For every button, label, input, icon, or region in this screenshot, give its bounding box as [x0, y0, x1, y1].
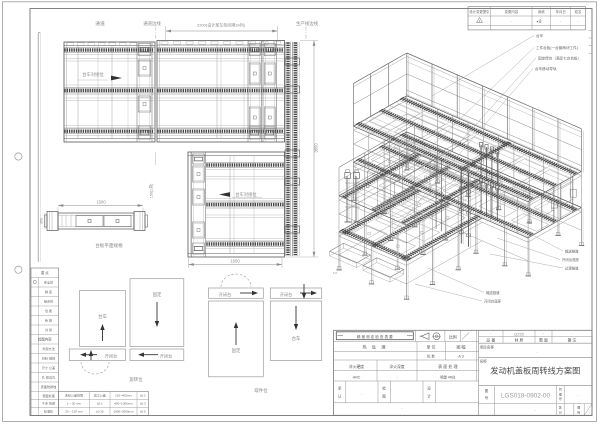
svg-text:淬火深度: 淬火深度: [389, 364, 404, 369]
svg-text:·: ·: [470, 337, 471, 341]
svg-text:台车移动导轨: 台车移动导轨: [535, 66, 557, 71]
svg-text:固定焊台（满足七台台板）: 固定焊台（满足七台台板）: [538, 56, 581, 61]
svg-text:材 质: 材 质: [515, 338, 524, 343]
svg-text:重 点: 重 点: [41, 270, 49, 275]
svg-text:号: 号: [485, 395, 489, 400]
svg-text:开闭台底座: 开闭台底座: [484, 299, 502, 304]
svg-text:表面处理: 表面处理: [42, 393, 54, 398]
svg-text:批 数: 批 数: [427, 354, 435, 359]
svg-text:过渡链道: 过渡链道: [565, 266, 579, 271]
svg-text:孔·锪窝孔: 孔·锪窝孔: [42, 375, 55, 380]
svg-text:备 注: 备 注: [568, 338, 577, 343]
svg-text:固定: 固定: [153, 291, 162, 298]
svg-text:精 度 测 定 检 查 表 要: 精 度 测 定 检 查 表 要: [357, 334, 393, 339]
svg-text:A 3: A 3: [458, 355, 464, 359]
svg-text:品 番: 品 番: [486, 338, 495, 343]
svg-text:干涉·拆卸: 干涉·拆卸: [42, 401, 55, 406]
svg-text:姓名: 姓名: [575, 9, 582, 14]
svg-text:·: ·: [490, 331, 491, 336]
svg-text:·: ·: [587, 405, 588, 409]
svg-text:尺寸·公差: 尺寸·公差: [42, 365, 55, 370]
svg-text:±0.15: ±0.15: [96, 410, 104, 414]
svg-text:开闭台: 开闭台: [105, 353, 118, 360]
svg-text:·: ·: [577, 393, 578, 398]
svg-text:开闭台: 开闭台: [280, 291, 293, 298]
svg-text:安全性: 安全性: [44, 280, 53, 285]
svg-text:项目名称: 项目名称: [480, 345, 495, 350]
svg-text:Q235: Q235: [514, 331, 525, 336]
svg-text:±0.3: ±0.3: [140, 402, 146, 406]
svg-text:数 量: 数 量: [539, 338, 548, 343]
svg-text:30 ~ 120 mm: 30 ~ 120 mm: [65, 410, 83, 414]
svg-text:变更内容: 变更内容: [505, 9, 519, 14]
svg-text:台车: 台车: [292, 335, 301, 342]
svg-text:检: 检: [382, 386, 386, 391]
svg-text:台车对接位: 台车对接位: [235, 191, 257, 198]
svg-text:6.6: 6.6: [333, 271, 338, 275]
svg-text:台车: 台车: [98, 313, 107, 320]
svg-text:±0.2: ±0.2: [140, 394, 146, 398]
svg-text:设: 设: [427, 386, 431, 391]
svg-text:旋转位: 旋转位: [129, 376, 143, 383]
svg-text:±0.1: ±0.1: [97, 402, 103, 406]
svg-text:名称: 名称: [480, 359, 488, 364]
svg-text:取件位: 取件位: [254, 387, 268, 394]
svg-text:设计变更提引: 设计变更提引: [469, 9, 489, 14]
svg-text:理: 理: [559, 391, 562, 396]
svg-text:图 幅: 图 幅: [456, 344, 465, 350]
svg-text:喷塑 4R白: 喷塑 4R白: [440, 374, 455, 379]
svg-text:·: ·: [560, 18, 561, 23]
svg-text:开闭台底座: 开闭台底座: [562, 257, 580, 262]
svg-text:±0.5: ±0.5: [140, 410, 146, 414]
svg-text:·: ·: [589, 411, 590, 415]
svg-text:HRC: HRC: [353, 375, 361, 379]
svg-text:图: 图: [577, 406, 580, 410]
svg-text:单 位: 单 位: [426, 344, 435, 350]
svg-text:承: 承: [338, 386, 342, 391]
svg-text:外观方法: 外观方法: [42, 346, 54, 351]
svg-text:·: ·: [361, 392, 362, 397]
svg-text:●设: ●设: [536, 18, 542, 23]
svg-text:台板平面规格: 台板平面规格: [95, 242, 123, 249]
svg-text:共 用: 共 用: [45, 327, 52, 332]
svg-text:用纸: 用纸: [538, 9, 545, 14]
svg-text:通道: 通道: [95, 20, 105, 27]
svg-text:材料·规格: 材料·规格: [42, 356, 56, 361]
svg-text:工件台板(一台套两块工件): 工件台板(一台套两块工件): [536, 45, 578, 50]
svg-text:台车对接位: 台车对接位: [82, 71, 104, 78]
svg-text:热 处 理: 热 处 理: [363, 344, 388, 351]
svg-text:·: ·: [464, 333, 465, 337]
svg-text:认: 认: [338, 394, 342, 399]
svg-text:·: ·: [396, 374, 397, 379]
svg-text:未标公差范围: 未标公差范围: [65, 393, 83, 398]
svg-text:通道边线: 通道边线: [143, 20, 161, 27]
svg-text:检图内容: 检图内容: [38, 337, 52, 342]
svg-text:1000~2000mm: 1000~2000mm: [113, 410, 134, 414]
svg-text:2200(设计某车型间隔34列): 2200(设计某车型间隔34列): [197, 22, 246, 28]
svg-text:分: 分: [559, 409, 562, 414]
svg-text:3850: 3850: [314, 143, 319, 153]
svg-text:台车: 台车: [536, 33, 544, 38]
svg-text:1 ~ 30 mm: 1 ~ 30 mm: [67, 402, 82, 406]
svg-text:开闭台: 开闭台: [219, 291, 232, 298]
svg-text:·: ·: [543, 331, 544, 336]
svg-text:图: 图: [485, 389, 489, 393]
svg-text:加工公差: 加工公差: [94, 393, 106, 398]
svg-text:开闭台: 开闭台: [160, 353, 173, 360]
svg-text:新 规: 新 规: [45, 318, 52, 323]
svg-text:标准化: 标准化: [44, 409, 53, 414]
svg-text:性 能: 性 能: [45, 308, 52, 313]
svg-text:·: ·: [534, 408, 535, 413]
svg-text:LGS018-0902-00: LGS018-0902-00: [501, 392, 550, 399]
svg-text:表 面 处 理: 表 面 处 理: [438, 363, 457, 369]
svg-text:码: 码: [577, 409, 580, 414]
svg-text:输送链道: 输送链道: [486, 290, 500, 295]
svg-text:·: ·: [571, 331, 572, 336]
svg-text:区: 区: [559, 406, 562, 410]
svg-text:比例: 比例: [449, 333, 457, 339]
svg-text:350: 350: [40, 218, 44, 224]
svg-text:生产线边线: 生产线边线: [296, 20, 319, 27]
svg-text:号: 号: [559, 396, 562, 401]
svg-text:精 度: 精 度: [45, 289, 52, 294]
svg-text:·: ·: [510, 18, 511, 23]
svg-text:·: ·: [577, 18, 578, 23]
svg-text:·: ·: [536, 350, 537, 355]
svg-text:组合性: 组合性: [44, 299, 53, 304]
svg-text:表面防锈蚀: 表面防锈蚀: [41, 384, 56, 389]
svg-text:图: 图: [382, 395, 386, 399]
svg-text:·: ·: [401, 406, 402, 411]
svg-text:1650: 1650: [230, 259, 240, 264]
svg-text:管: 管: [559, 387, 562, 392]
svg-text:淬火硬度: 淬火硬度: [349, 364, 364, 369]
svg-text:400~1000mm: 400~1000mm: [114, 402, 133, 406]
svg-text:年月日: 年月日: [556, 9, 566, 14]
svg-text:计: 计: [427, 394, 431, 399]
svg-text:150(1排): 150(1排): [149, 183, 154, 199]
svg-text:输送链道: 输送链道: [565, 249, 579, 254]
svg-text:发动机盖板周转线方案图: 发动机盖板周转线方案图: [490, 366, 580, 376]
svg-text:固定: 固定: [232, 347, 241, 354]
svg-text:120~400mm: 120~400mm: [115, 394, 132, 398]
svg-text:1500: 1500: [96, 200, 106, 205]
